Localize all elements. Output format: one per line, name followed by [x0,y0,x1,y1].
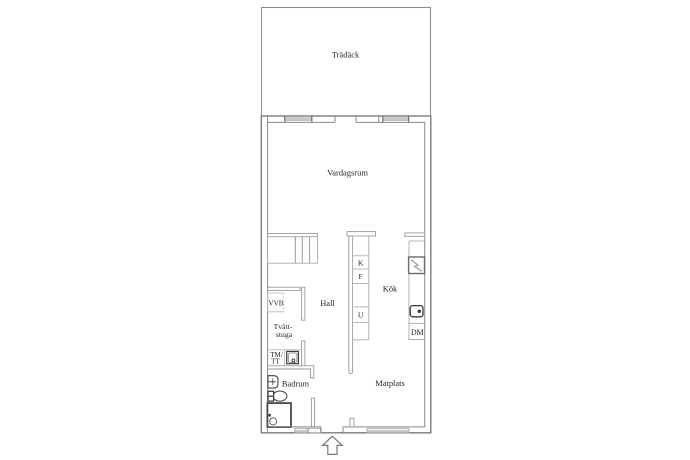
svg-text:U: U [358,310,364,319]
svg-text:Matplats: Matplats [375,378,405,388]
svg-text:Vardagsrum: Vardagsrum [327,168,368,178]
svg-text:DM: DM [411,328,424,337]
svg-text:TT: TT [271,357,280,365]
svg-text:Trädäck: Trädäck [332,50,360,60]
svg-text:Hall: Hall [320,298,335,308]
svg-text:VVB: VVB [269,300,284,308]
svg-text:F: F [359,272,363,281]
svg-text:K: K [358,258,364,267]
svg-text:stuga: stuga [276,330,293,339]
svg-text:Badrum: Badrum [282,378,310,388]
svg-text:Kök: Kök [383,283,398,293]
